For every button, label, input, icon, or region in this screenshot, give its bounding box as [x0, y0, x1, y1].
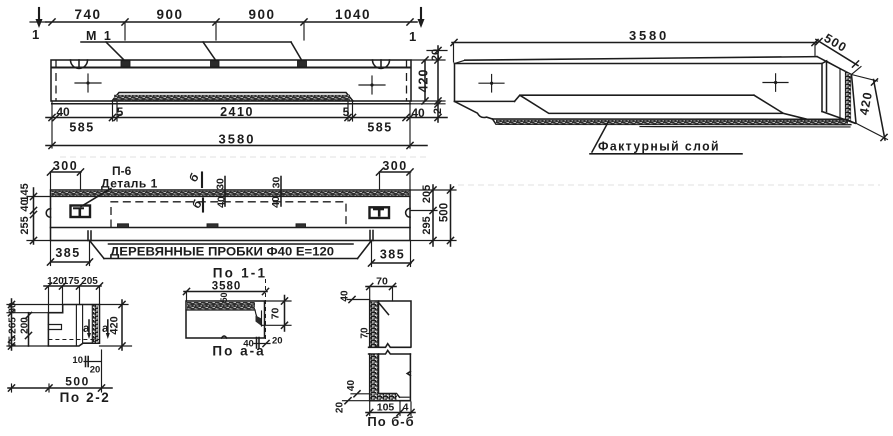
- svg-text:30: 30: [271, 177, 283, 189]
- svg-text:По б-б: По б-б: [367, 414, 414, 429]
- svg-text:ДЕРЕВЯННЫЕ ПРОБКИ Ф40 Е=120: ДЕРЕВЯННЫЕ ПРОБКИ Ф40 Е=120: [110, 245, 334, 259]
- svg-text:40: 40: [411, 106, 425, 120]
- svg-text:385: 385: [55, 246, 80, 260]
- svg-text:5: 5: [117, 105, 124, 119]
- svg-text:40: 40: [56, 105, 70, 119]
- svg-text:300: 300: [382, 159, 407, 173]
- svg-text:265: 265: [8, 317, 19, 334]
- svg-text:175: 175: [63, 276, 80, 287]
- svg-text:585: 585: [69, 121, 94, 135]
- svg-text:300: 300: [53, 159, 78, 173]
- svg-text:1: 1: [409, 29, 416, 44]
- svg-text:105: 105: [377, 402, 395, 414]
- svg-text:740: 740: [74, 7, 101, 22]
- svg-text:585: 585: [367, 121, 392, 135]
- svg-text:20: 20: [90, 365, 101, 376]
- svg-text:500: 500: [439, 203, 451, 222]
- svg-text:1: 1: [32, 27, 39, 42]
- svg-text:10: 10: [72, 355, 83, 366]
- svg-text:3580: 3580: [219, 132, 256, 147]
- svg-text:По 1-1: По 1-1: [213, 266, 267, 281]
- svg-text:385: 385: [380, 248, 405, 262]
- svg-text:4: 4: [403, 402, 409, 414]
- svg-text:420: 420: [109, 316, 121, 334]
- svg-text:80: 80: [8, 302, 19, 314]
- svg-text:205: 205: [81, 276, 98, 287]
- svg-text:255: 255: [19, 216, 31, 234]
- svg-text:20: 20: [430, 49, 442, 61]
- svg-text:40: 40: [216, 196, 228, 208]
- svg-text:75: 75: [8, 336, 19, 348]
- svg-text:70: 70: [360, 327, 371, 339]
- svg-text:5: 5: [343, 105, 350, 119]
- svg-text:20: 20: [272, 336, 283, 347]
- svg-text:3580: 3580: [212, 281, 242, 293]
- svg-text:40: 40: [346, 380, 357, 392]
- svg-text:50: 50: [219, 292, 229, 302]
- svg-text:295: 295: [421, 216, 433, 234]
- svg-text:2: 2: [432, 108, 444, 114]
- svg-text:420: 420: [417, 69, 431, 93]
- svg-text:20: 20: [335, 402, 346, 414]
- svg-text:70: 70: [376, 276, 388, 288]
- svg-text:3580: 3580: [629, 28, 669, 43]
- svg-text:145: 145: [19, 183, 31, 201]
- svg-text:По а-а: По а-а: [212, 344, 265, 359]
- svg-text:30: 30: [215, 178, 227, 190]
- svg-text:205: 205: [421, 185, 433, 203]
- svg-text:900: 900: [156, 7, 183, 22]
- svg-text:900: 900: [248, 7, 275, 22]
- svg-text:40: 40: [19, 199, 31, 211]
- svg-text:Фактурный слой: Фактурный слой: [598, 139, 720, 154]
- svg-text:200: 200: [20, 317, 31, 334]
- svg-text:500: 500: [65, 375, 90, 389]
- svg-text:70: 70: [270, 308, 282, 320]
- svg-text:1040: 1040: [335, 7, 371, 22]
- svg-text:40: 40: [270, 196, 282, 208]
- svg-text:2410: 2410: [220, 105, 254, 119]
- svg-text:Деталь 1: Деталь 1: [101, 177, 158, 191]
- svg-text:М 1: М 1: [86, 29, 113, 43]
- svg-text:По 2-2: По 2-2: [60, 390, 111, 405]
